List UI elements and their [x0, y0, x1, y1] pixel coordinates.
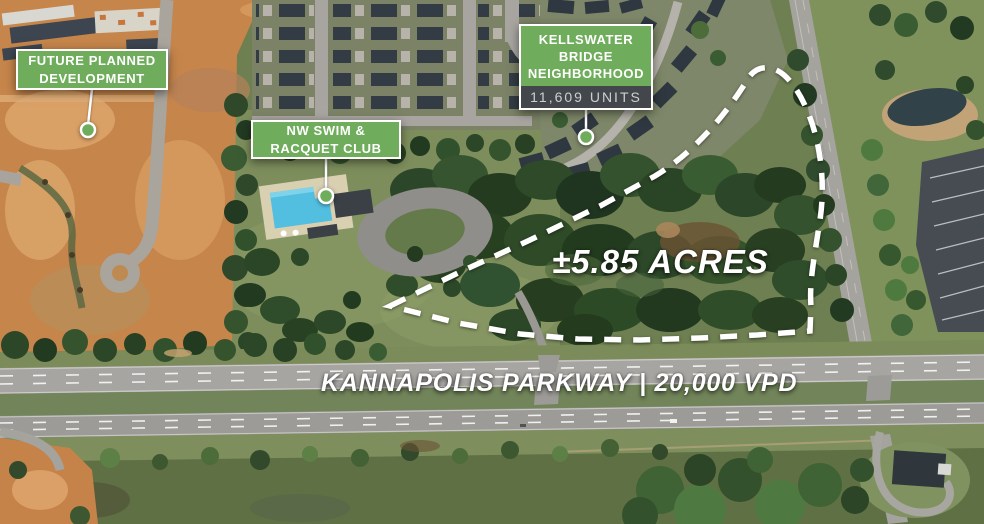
label-text-line: DEVELOPMENT — [18, 70, 166, 88]
label-kellswater-name: KELLSWATER BRIDGE NEIGHBORHOOD — [521, 26, 651, 86]
leader-line-future — [88, 89, 92, 125]
label-kellswater-bridge-neighborhood: KELLSWATER BRIDGE NEIGHBORHOOD 11,609 UN… — [519, 24, 653, 110]
label-text-line: KELLSWATER — [523, 31, 649, 48]
label-text-line: NEIGHBORHOOD — [523, 65, 649, 82]
location-dot-kellswater — [579, 130, 593, 144]
aerial-marketing-map: FUTURE PLANNED DEVELOPMENT NW SWIM & RAC… — [0, 0, 984, 524]
location-dot-future — [81, 123, 95, 137]
label-future-planned-development: FUTURE PLANNED DEVELOPMENT — [16, 49, 168, 90]
label-nw-swim-racquet-club: NW SWIM & RACQUET CLUB — [251, 120, 401, 159]
acreage-label: ±5.85 ACRES — [552, 243, 769, 281]
label-text-line: RACQUET CLUB — [253, 140, 399, 158]
units-badge: 11,609 UNITS — [521, 86, 651, 108]
location-dot-swim — [319, 189, 333, 203]
parkway-label: KANNAPOLIS PARKWAY | 20,000 VPD — [321, 369, 797, 398]
label-text-line: BRIDGE — [523, 48, 649, 65]
label-text-line: NW SWIM & — [253, 122, 399, 140]
label-text-line: FUTURE PLANNED — [18, 52, 166, 70]
